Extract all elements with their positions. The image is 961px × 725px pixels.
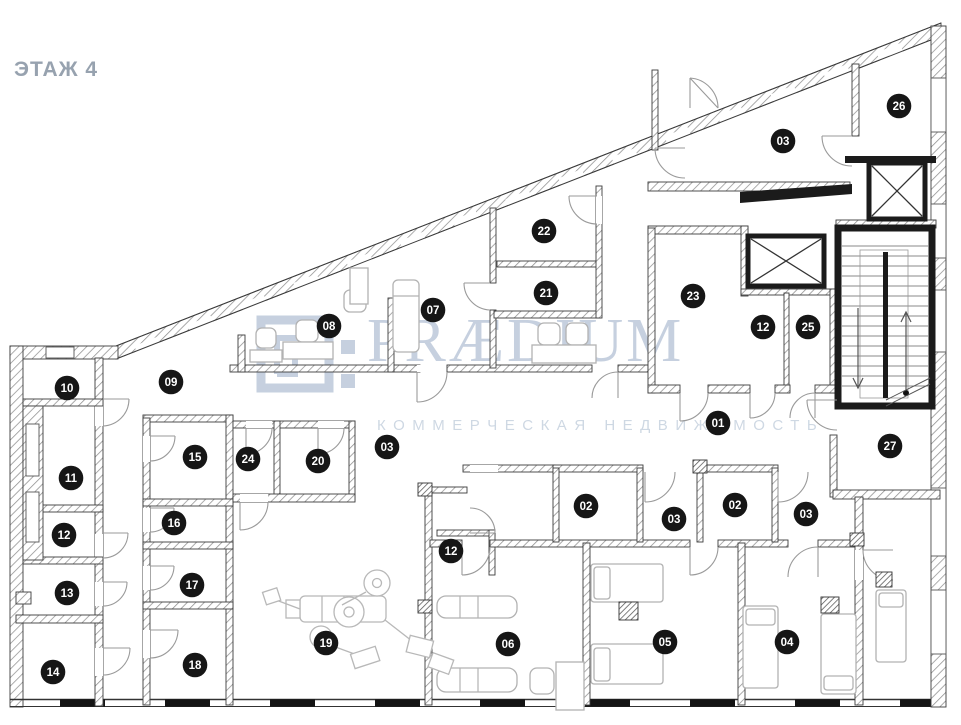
- elevator-shaft-center: [748, 236, 824, 286]
- room-marker-16: 16: [162, 511, 187, 536]
- svg-text:06: 06: [502, 639, 515, 651]
- room-marker-03: 03: [771, 129, 796, 154]
- svg-text:27: 27: [884, 441, 897, 453]
- room-marker-04: 04: [775, 630, 800, 655]
- nightstand: [619, 602, 638, 620]
- svg-text:03: 03: [800, 509, 813, 521]
- svg-text:25: 25: [802, 322, 815, 334]
- svg-text:12: 12: [445, 546, 458, 558]
- svg-text:12: 12: [757, 322, 770, 334]
- room-marker-12: 12: [751, 315, 776, 340]
- lounge: [437, 596, 517, 618]
- room-marker-03: 03: [794, 502, 819, 527]
- room-marker-19: 19: [314, 631, 339, 656]
- svg-text:24: 24: [242, 454, 255, 466]
- room-marker-25: 25: [796, 315, 821, 340]
- elevator-shaft-top: [869, 163, 925, 219]
- svg-text:22: 22: [538, 226, 551, 238]
- svg-text:02: 02: [580, 501, 593, 513]
- door-arcs: [103, 78, 893, 675]
- room-marker-24: 24: [236, 447, 261, 472]
- svg-text:23: 23: [687, 291, 700, 303]
- room-marker-09: 09: [159, 370, 184, 395]
- room-marker-20: 20: [306, 449, 331, 474]
- room-marker-21: 21: [534, 281, 559, 306]
- svg-text:09: 09: [165, 377, 178, 389]
- floor-title: ЭТАЖ 4: [14, 58, 98, 82]
- svg-text:10: 10: [61, 383, 74, 395]
- svg-text:12: 12: [58, 530, 71, 542]
- svg-text:13: 13: [61, 588, 74, 600]
- svg-text:15: 15: [189, 452, 202, 464]
- room-marker-03: 03: [662, 507, 687, 532]
- svg-text:03: 03: [381, 442, 394, 454]
- svg-text:20: 20: [312, 456, 325, 468]
- chair: [296, 320, 318, 342]
- room-marker-17: 17: [180, 573, 205, 598]
- svg-text:07: 07: [427, 305, 440, 317]
- couch: [393, 280, 419, 352]
- chair: [538, 323, 560, 345]
- svg-text:14: 14: [47, 667, 60, 679]
- desk: [556, 662, 584, 710]
- room-marker-02: 02: [723, 493, 748, 518]
- svg-text:02: 02: [729, 500, 742, 512]
- room-marker-12: 12: [439, 539, 464, 564]
- room-marker-02: 02: [574, 494, 599, 519]
- svg-text:19: 19: [320, 638, 333, 650]
- svg-text:16: 16: [168, 518, 181, 530]
- room-marker-15: 15: [183, 445, 208, 470]
- svg-text:01: 01: [712, 418, 725, 430]
- svg-text:11: 11: [65, 473, 78, 485]
- room-marker-18: 18: [183, 653, 208, 678]
- chair: [530, 668, 554, 694]
- floor-plan-canvas: ЭТАЖ 4 PRÆDIUM КОММЕРЧЕСКАЯ НЕДВИЖИМОСТЬ: [0, 0, 961, 725]
- room-marker-27: 27: [878, 434, 903, 459]
- nightstand: [876, 572, 892, 587]
- svg-text:26: 26: [893, 101, 906, 113]
- svg-text:17: 17: [186, 580, 199, 592]
- svg-text:08: 08: [323, 321, 336, 333]
- chair: [566, 323, 588, 345]
- svg-text:05: 05: [659, 637, 672, 649]
- room-marker-12: 12: [52, 523, 77, 548]
- svg-text:03: 03: [668, 514, 681, 526]
- floor-plan-svg: 2603222123070812250910012703152420110202…: [0, 0, 961, 725]
- svg-text:03: 03: [777, 136, 790, 148]
- room-marker-06: 06: [496, 632, 521, 657]
- room-marker-23: 23: [681, 284, 706, 309]
- desk: [283, 342, 333, 359]
- room-marker-11: 11: [59, 466, 84, 491]
- svg-text:21: 21: [540, 288, 553, 300]
- chair: [256, 328, 276, 348]
- svg-text:18: 18: [189, 660, 202, 672]
- nightstand: [821, 597, 839, 613]
- room-marker-26: 26: [887, 94, 912, 119]
- room-marker-13: 13: [55, 581, 80, 606]
- room-marker-22: 22: [532, 219, 557, 244]
- desk: [350, 268, 368, 304]
- room-marker-08: 08: [317, 314, 342, 339]
- stairwell: [836, 220, 936, 406]
- desk: [532, 345, 596, 363]
- room-marker-14: 14: [41, 660, 66, 685]
- room-marker-07: 07: [421, 298, 446, 323]
- table: [250, 350, 282, 362]
- room-marker-05: 05: [653, 630, 678, 655]
- room-marker-03: 03: [375, 435, 400, 460]
- room-marker-10: 10: [55, 376, 80, 401]
- svg-text:04: 04: [781, 637, 794, 649]
- room-marker-01: 01: [706, 411, 731, 436]
